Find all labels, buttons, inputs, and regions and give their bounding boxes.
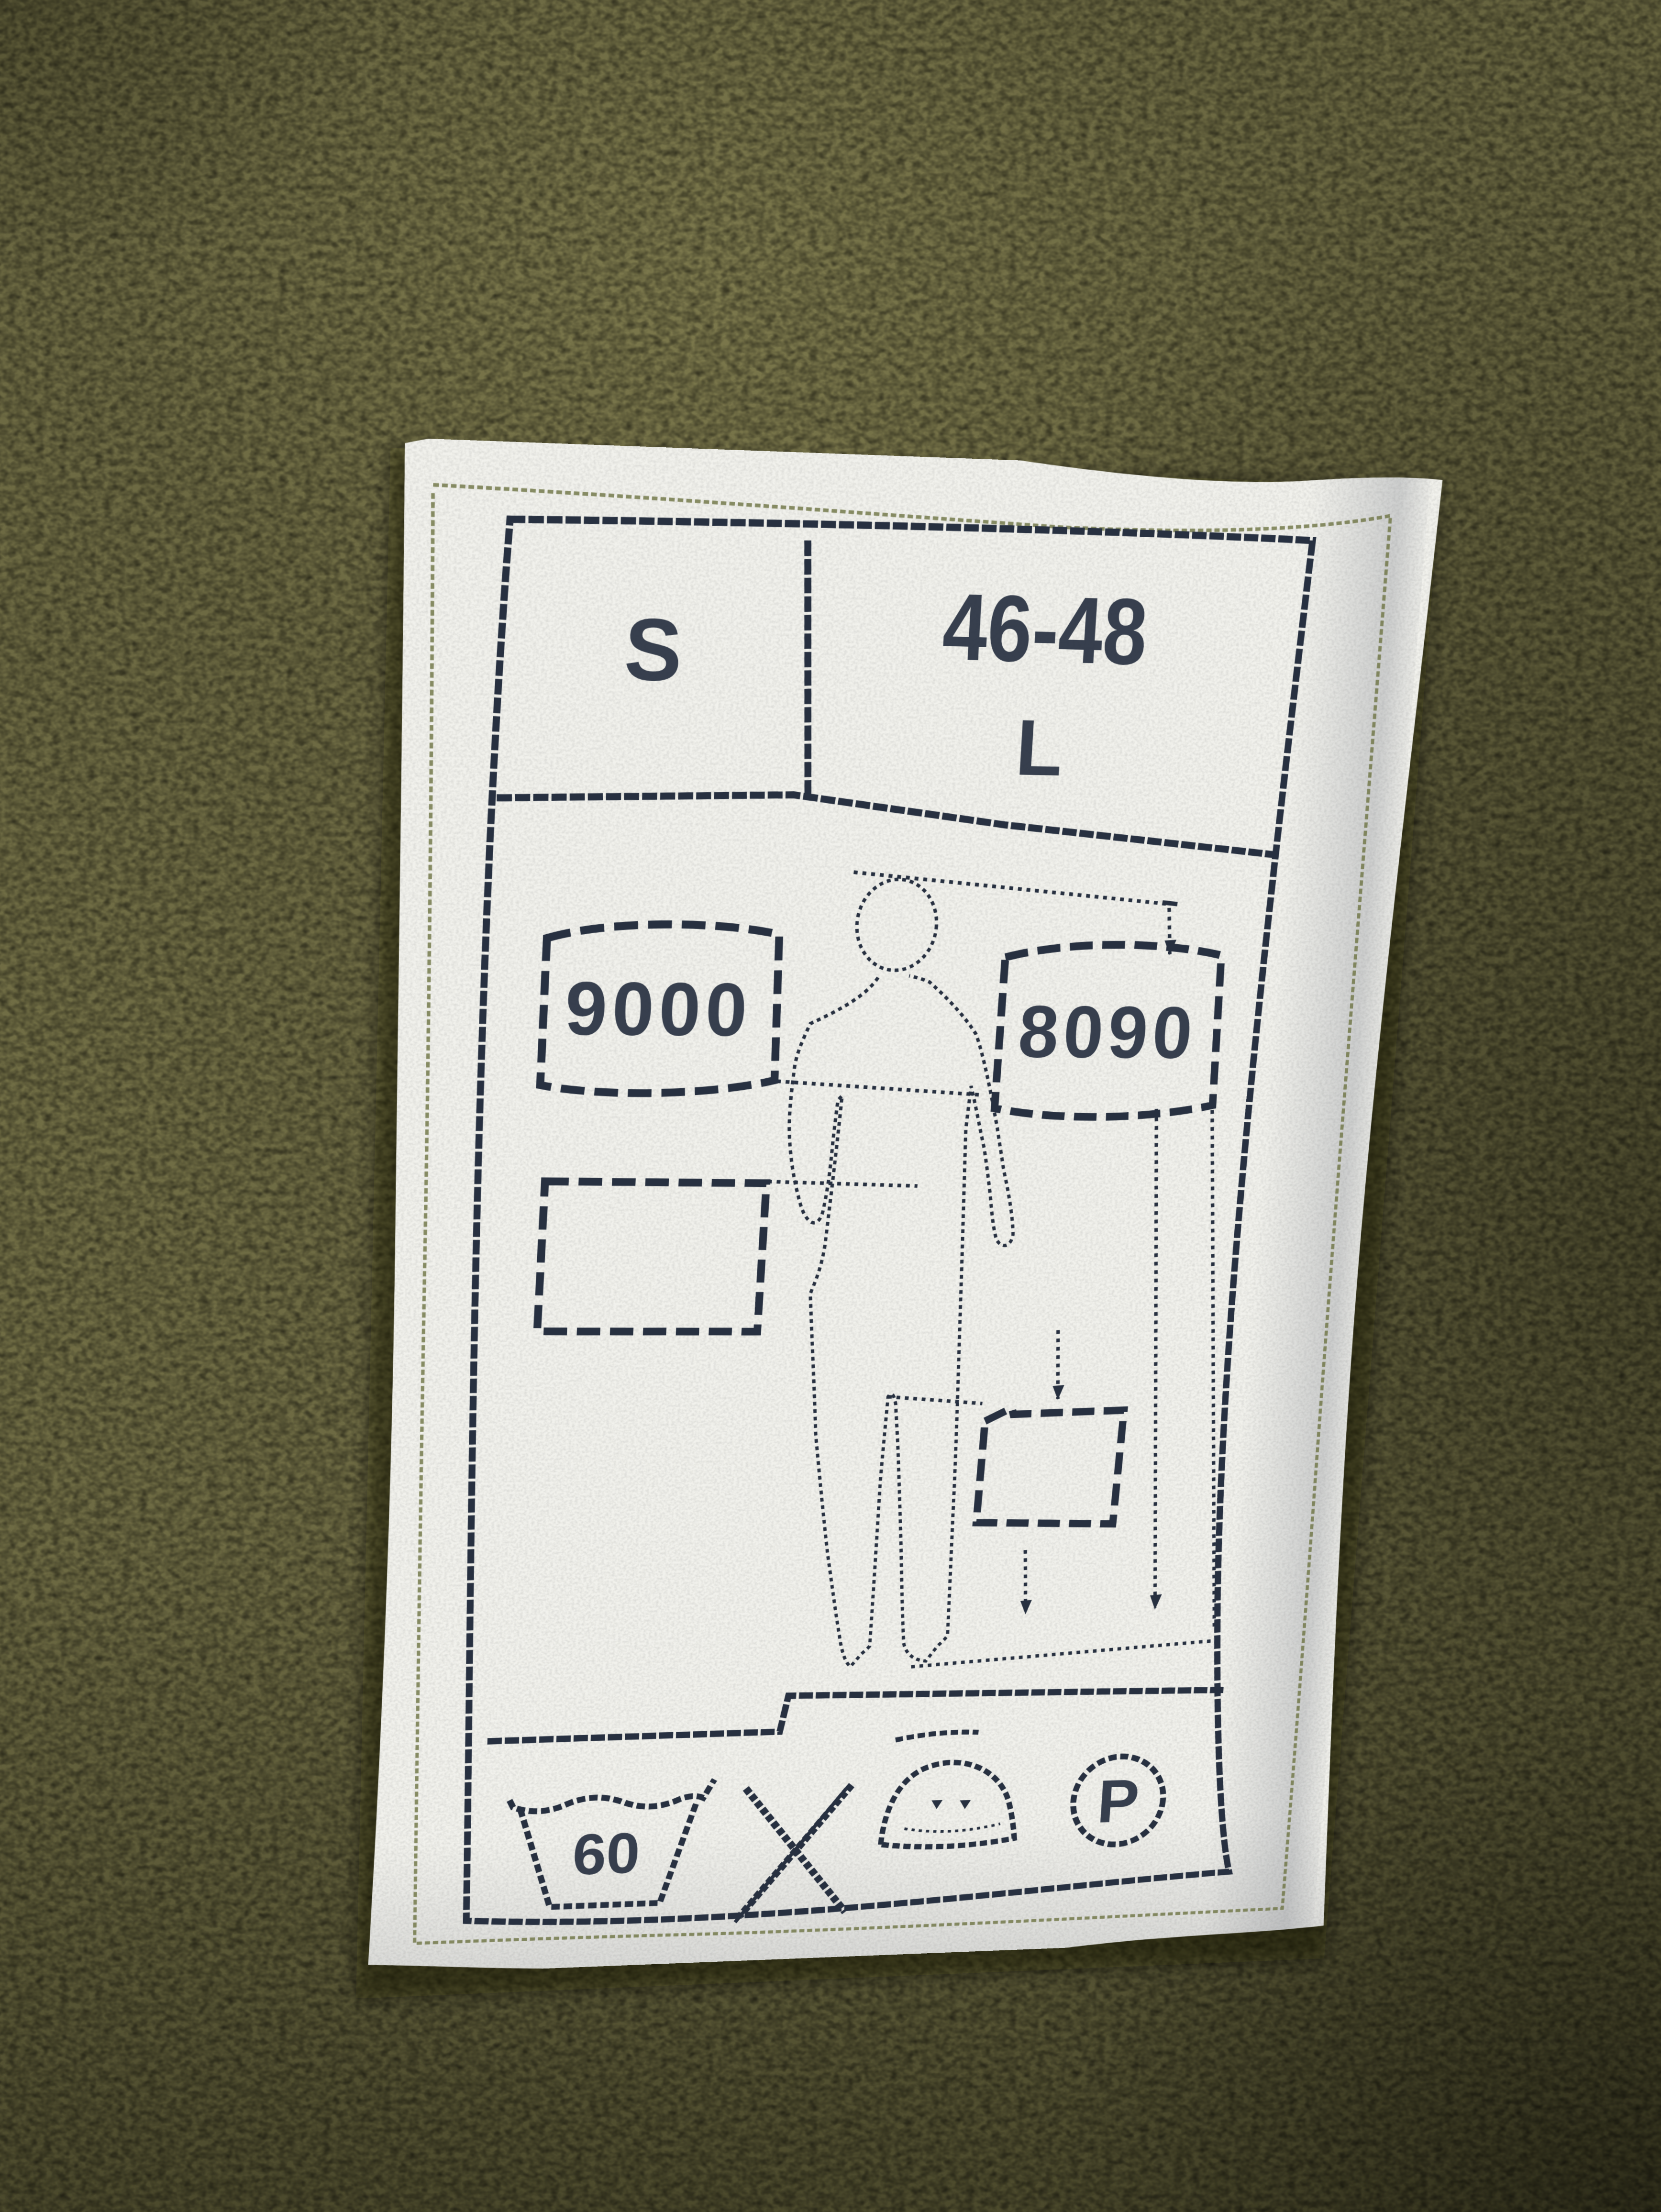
- svg-text:60: 60: [572, 1821, 641, 1887]
- svg-text:S: S: [623, 600, 684, 700]
- svg-text:L: L: [1014, 703, 1065, 792]
- svg-text:9000: 9000: [564, 966, 753, 1052]
- svg-text:8090: 8090: [1016, 990, 1200, 1074]
- svg-text:46-48: 46-48: [940, 574, 1151, 685]
- svg-text:P: P: [1096, 1766, 1141, 1836]
